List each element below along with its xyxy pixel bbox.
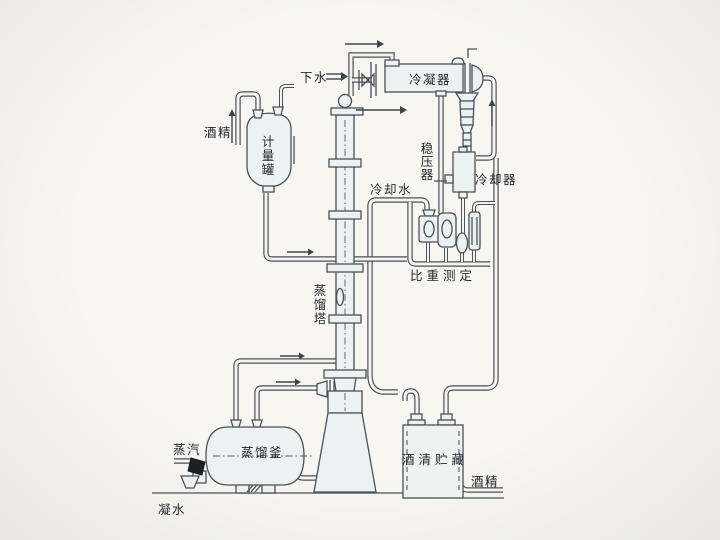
svg-text:罐: 罐: [262, 163, 275, 177]
svg-text:计: 计: [262, 135, 275, 149]
tower-flange: [329, 159, 361, 167]
stabilizer-label: 稳 压 器: [421, 141, 434, 182]
measuring-tank-left-nozzle: [253, 110, 263, 118]
gravity-measure-label: 比重测定: [410, 268, 476, 283]
condenser-vent-line: [468, 49, 477, 58]
svg-text:量: 量: [262, 149, 275, 163]
measuring-tank-right-nozzle: [273, 107, 283, 115]
tower-flange: [327, 264, 363, 272]
sample-bulb: [457, 233, 468, 253]
svg-text:蒸: 蒸: [314, 284, 327, 298]
stabilizer-side-fitting: [445, 175, 453, 183]
condensate-funnel: [181, 476, 199, 488]
condenser-label: 冷凝器: [409, 72, 451, 87]
tower-bottom-flange: [324, 370, 366, 378]
svg-text:塔: 塔: [314, 312, 327, 326]
tower-skirt: [314, 413, 376, 492]
tower-top-ball: [339, 95, 352, 108]
kettle-nozzle: [231, 420, 241, 427]
alcohol-in-label: 酒精: [204, 126, 232, 140]
kettle-nozzle: [252, 420, 262, 427]
tower-flange: [329, 315, 361, 323]
condensate-label: 凝水: [158, 502, 186, 517]
cooler-label: 冷却器: [475, 173, 517, 187]
drain-water-arrows: [326, 72, 348, 81]
process-flow-diagram: 下水 冷凝器 酒精 计 量 罐 稳 压 器 冷却水 冷却器 比重测定 蒸 馏 塔…: [0, 0, 720, 540]
hydrometer-top-pipe: [474, 203, 495, 212]
svg-text:馏: 馏: [314, 297, 327, 312]
kettle-label: 蒸馏釜: [241, 445, 283, 460]
steam-label: 蒸汽: [173, 442, 201, 457]
steam-valve-icon: [188, 458, 205, 475]
storage-feed-downpipe: [446, 158, 496, 416]
storage-tank-vent-hook-pipe: [405, 391, 417, 414]
tower-flange: [329, 211, 361, 219]
measuring-tank-outlet-nozzle: [263, 186, 274, 192]
alcohol-out-label: 酒精: [471, 475, 499, 489]
tower-label: 蒸 馏 塔: [314, 284, 327, 326]
cooling-water-label: 冷却水: [370, 183, 412, 197]
tower-top-plate: [331, 108, 363, 115]
condenser-top-dome: [452, 58, 464, 64]
drain-water-label: 下水: [300, 71, 328, 85]
svg-text:器: 器: [421, 168, 434, 182]
kettle-return-riser-pipe: [257, 388, 318, 424]
diagram-canvas: 下水 冷凝器 酒精 计 量 罐 稳 压 器 冷却水 冷却器 比重测定 蒸 馏 塔…: [0, 0, 720, 540]
hydrometer-cylinder: [469, 212, 480, 250]
svg-text:压: 压: [421, 155, 434, 169]
svg-text:稳: 稳: [421, 141, 434, 156]
tower-sight-glass: [337, 289, 344, 306]
sight-glass-column: [456, 93, 478, 152]
storage-label: 酒清贮藏: [402, 452, 468, 467]
condenser-inlet-nozzle: [385, 60, 399, 66]
condenser-bottom-nozzle: [436, 91, 446, 96]
measuring-tank-label: 计 量 罐: [262, 135, 275, 177]
